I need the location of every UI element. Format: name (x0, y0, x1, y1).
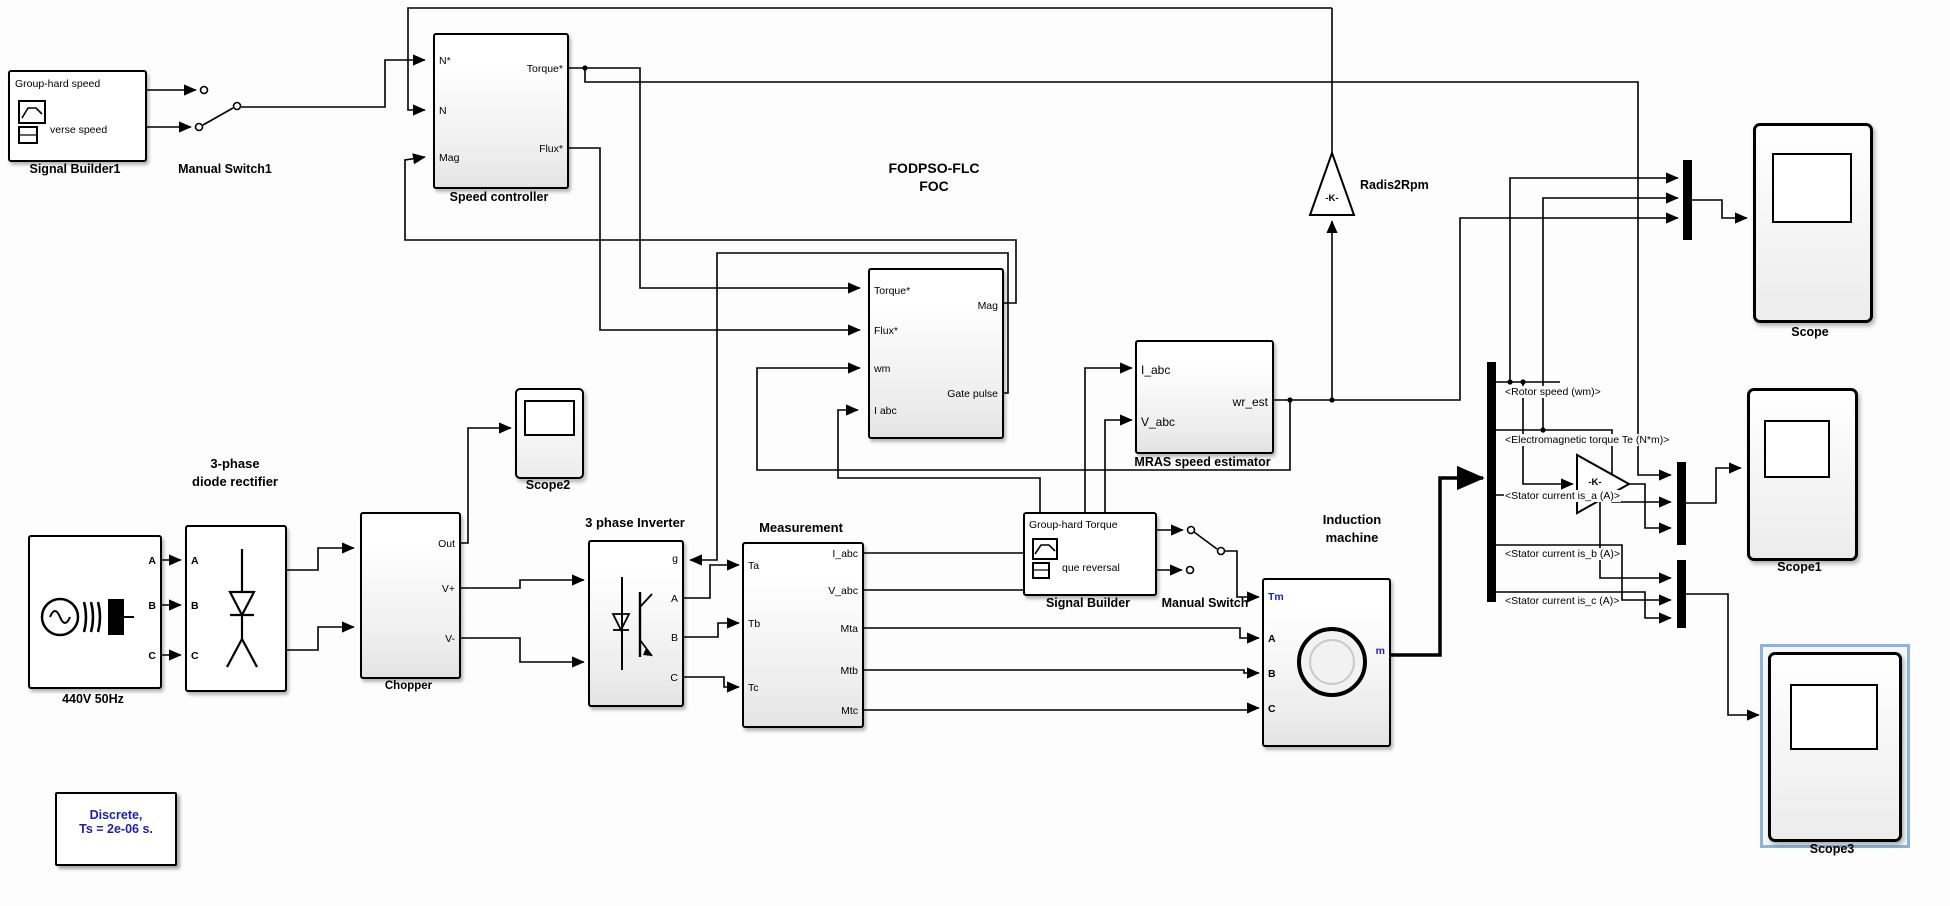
signal-builder-bottom-signal: que reversal (1062, 562, 1120, 574)
port-mras-iabc: I_abc (1141, 363, 1170, 377)
rectifier-caption-line2: diode rectifier (160, 474, 310, 489)
port-inv-c: C (670, 672, 678, 684)
port-im-tm: Tm (1268, 591, 1284, 603)
port-im-b: B (1268, 668, 1276, 680)
signal-builder-block[interactable]: Group-hard Torque que reversal (1023, 512, 1157, 596)
port-foc-wm: wm (874, 363, 890, 375)
powergui-line2: Ts = 2e-06 s. (57, 822, 175, 836)
port-rect-a: A (191, 555, 199, 567)
bus-signal-rotor-speed: <Rotor speed (wm)> (1504, 386, 1602, 398)
port-mras-vabc: V_abc (1141, 415, 1175, 429)
port-foc-flux: Flux* (874, 325, 898, 337)
inverter-caption: 3 phase Inverter (565, 515, 705, 530)
igbt-icon (608, 572, 658, 677)
mux-scope3-bar (1677, 560, 1686, 628)
port-chopper-vplus: V+ (442, 583, 455, 595)
powergui-line1: Discrete, (57, 808, 175, 822)
induction-machine-caption-line1: Induction (1292, 512, 1412, 527)
signal-builder1-top-signal: Group-hard speed (15, 78, 100, 90)
foc-block[interactable]: Torque* Flux* wm I abc Mag Gate pulse (868, 268, 1004, 439)
port-foc-iabc: I abc (874, 405, 897, 417)
foc-title-line2: FOC (858, 178, 1010, 194)
induction-machine-caption-line2: machine (1292, 530, 1412, 545)
gain-rad2rpm-caption: Radis2Rpm (1360, 178, 1429, 192)
bus-signal-current-c: <Stator current is_c (A)> (1504, 595, 1620, 607)
speed-controller-caption: Speed controller (433, 190, 565, 204)
manual-switch-caption: Manual Switch (1150, 596, 1260, 610)
mras-block[interactable]: I_abc V_abc wr_est (1135, 340, 1274, 454)
port-foc-mag: Mag (978, 300, 998, 312)
port-src-a: A (148, 555, 156, 567)
mras-caption: MRAS speed estimator (1090, 455, 1315, 469)
scope2-caption: Scope2 (498, 478, 598, 492)
chopper-caption: Chopper (360, 680, 457, 692)
signal-builder1-caption: Signal Builder1 (0, 162, 150, 176)
port-n-ref: N* (439, 55, 451, 67)
port-src-b: B (148, 600, 156, 612)
port-meas-tc: Tc (748, 682, 759, 694)
signal-builder-caption: Signal Builder (1023, 596, 1153, 610)
port-chopper-vminus: V- (445, 633, 455, 645)
port-meas-mtb: Mtb (840, 665, 858, 677)
port-foc-torque: Torque* (874, 285, 910, 297)
gain-rad2rpm-triangle (1310, 153, 1354, 215)
port-rect-b: B (191, 600, 199, 612)
mux-scope1-bar (1677, 462, 1686, 545)
port-torque-out: Torque* (527, 63, 563, 75)
port-inv-b: B (671, 632, 678, 644)
port-meas-ta: Ta (748, 560, 759, 572)
port-mag-in: Mag (439, 152, 459, 164)
port-meas-iabc: I_abc (832, 548, 858, 560)
wiring-layer (0, 0, 1950, 906)
rectifier-block[interactable]: A B C (185, 525, 287, 692)
bus-selector-bar (1487, 362, 1496, 602)
bus-signal-current-b: <Stator current is_b (A)> (1504, 548, 1621, 560)
measurement-caption: Measurement (742, 520, 860, 535)
scope-caption: Scope (1753, 325, 1867, 339)
port-inv-g: g (672, 553, 678, 565)
port-src-c: C (148, 650, 156, 662)
scope1-screen (1764, 420, 1830, 478)
foc-title-line1: FODPSO-FLC (858, 160, 1010, 176)
signal-builder-top-signal: Group-hard Torque (1029, 519, 1118, 531)
scope2-screen (524, 400, 575, 436)
rectifier-caption-line1: 3-phase (160, 456, 310, 471)
speed-controller-block[interactable]: N* N Mag Torque* Flux* (433, 33, 569, 189)
ac-source-icon (38, 577, 138, 657)
gain-rad2rpm-value[interactable]: -K- (1316, 193, 1348, 204)
motor-icon (1292, 622, 1372, 702)
port-n: N (439, 105, 447, 117)
port-meas-mtc: Mtc (841, 705, 858, 717)
signal-builder1-bottom-signal: verse speed (50, 124, 107, 136)
manual-switch1-caption: Manual Switch1 (165, 162, 285, 176)
inverter-block[interactable]: g A B C (588, 540, 684, 707)
port-meas-vabc: V_abc (828, 585, 858, 597)
port-flux-out: Flux* (539, 143, 563, 155)
port-inv-a: A (671, 593, 678, 605)
scope-screen (1772, 153, 1852, 223)
port-meas-tb: Tb (748, 618, 760, 630)
ac-source-block[interactable]: A B C (28, 535, 162, 689)
port-rect-c: C (191, 650, 199, 662)
simulink-model-canvas: Group-hard speed verse speed Signal Buil… (0, 0, 1950, 906)
scope1-caption: Scope1 (1747, 560, 1852, 574)
powergui-block[interactable]: Discrete, Ts = 2e-06 s. (55, 792, 177, 866)
signal-builder-icon (18, 100, 46, 150)
diode-icon (217, 547, 267, 672)
ac-source-caption: 440V 50Hz (28, 692, 158, 706)
bus-signal-current-a: <Stator current is_a (A)> (1504, 490, 1621, 502)
induction-machine-block[interactable]: Tm A B C m (1262, 578, 1391, 747)
bus-signal-torque: <Electromagnetic torque Te (N*m)> (1504, 434, 1670, 446)
port-im-m: m (1376, 645, 1385, 657)
mux-scope-bar (1683, 160, 1692, 240)
signal-builder-icon (1032, 538, 1058, 584)
port-chopper-out: Out (438, 538, 455, 550)
port-im-a: A (1268, 633, 1276, 645)
chopper-block[interactable]: Out V+ V- (360, 512, 461, 679)
signal-builder1-block[interactable]: Group-hard speed verse speed (8, 70, 147, 162)
gain-k-value[interactable]: -K- (1578, 477, 1612, 488)
scope3-caption: Scope3 (1768, 842, 1896, 856)
port-foc-gate: Gate pulse (947, 388, 998, 400)
port-mras-wrest: wr_est (1233, 395, 1268, 409)
measurement-block[interactable]: Ta Tb Tc I_abc V_abc Mta Mtb Mtc (742, 542, 864, 728)
port-meas-mta: Mta (840, 623, 858, 635)
scope3-screen (1790, 684, 1878, 750)
port-im-c: C (1268, 703, 1276, 715)
